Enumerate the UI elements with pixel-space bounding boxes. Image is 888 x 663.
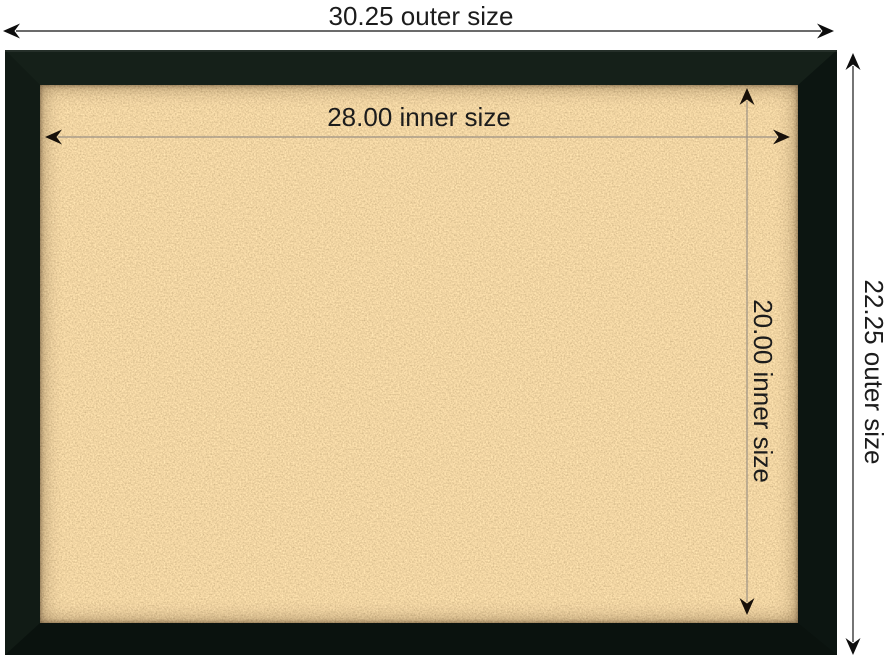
frame-top-highlight — [5, 50, 837, 52]
cork-edge-shadow — [40, 85, 798, 623]
outer-width-arrow-icon — [3, 23, 834, 39]
inner-width-label: 28.00 inner size — [327, 104, 511, 130]
inner-width-arrow-icon — [45, 129, 790, 145]
outer-height-label: 22.25 outer size — [861, 279, 887, 464]
product-dimension-diagram: 30.25 outer size 28.00 inner size — [0, 0, 888, 663]
inner-height-label: 20.00 inner size — [750, 299, 776, 483]
cork-surface — [40, 85, 798, 623]
